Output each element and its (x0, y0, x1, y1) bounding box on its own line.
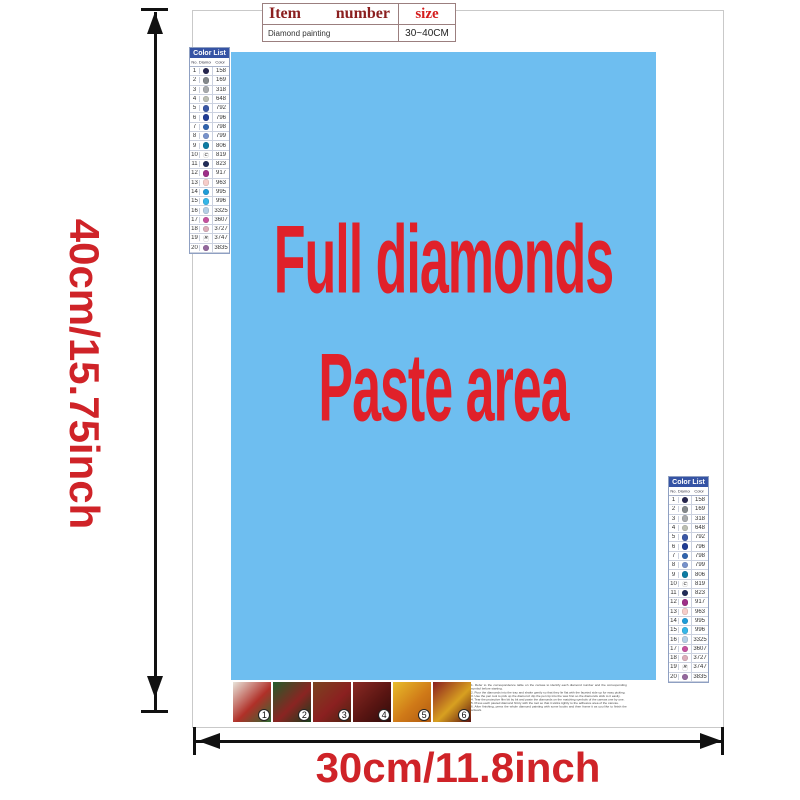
diamond-swatch-icon (682, 553, 689, 560)
color-list-row: 7 798 (669, 552, 708, 561)
diamond-swatch-icon (682, 646, 689, 653)
color-list-row: 12 917 (190, 169, 229, 178)
accessory-number-badge: 3 (338, 709, 350, 721)
accessory-number-badge: 1 (258, 709, 270, 721)
color-list-row: 18 3727 (190, 225, 229, 234)
color-list-row: 13 963 (669, 608, 708, 617)
color-list-row: 19 R 3747 (190, 234, 229, 243)
diamond-swatch-icon (203, 226, 210, 233)
diamond-swatch-icon (203, 189, 210, 196)
spec-value-item: Diamond painting (263, 25, 399, 41)
diamond-swatch-icon: C (203, 152, 210, 159)
color-list-row: 13 963 (190, 179, 229, 188)
paste-area: Full diamonds Paste area (231, 52, 656, 680)
diamond-swatch-icon (203, 170, 210, 177)
height-dimension-line (154, 12, 157, 710)
diamond-swatch-icon (682, 497, 689, 504)
color-list-row: 17 3607 (190, 216, 229, 225)
color-list-row: 1 158 (190, 67, 229, 76)
color-list-left-columns: No. Diamond Color (190, 58, 229, 67)
diamond-swatch-icon (682, 608, 689, 615)
diamond-swatch-icon (682, 674, 689, 681)
diamond-swatch-icon (682, 590, 689, 597)
diamond-swatch-icon (682, 627, 689, 634)
spec-header-item-number: Item number (263, 4, 399, 25)
spec-header-number: number (336, 5, 390, 23)
color-list-row: 1 158 (669, 496, 708, 505)
diamond-swatch-icon (203, 124, 210, 131)
accessory-number-badge: 2 (298, 709, 310, 721)
color-list-row: 16 3325 (190, 206, 229, 215)
diamond-swatch-icon (203, 114, 210, 121)
color-list-row: 20 3835 (190, 244, 229, 253)
color-list-row: 6 796 (190, 113, 229, 122)
color-list-row: 15 996 (190, 197, 229, 206)
color-list-row: 14 995 (190, 188, 229, 197)
color-list-row: 4 648 (190, 95, 229, 104)
width-dimension-line (196, 740, 723, 743)
diamond-swatch-icon (203, 77, 210, 84)
diamond-swatch-icon: C (682, 581, 689, 588)
height-dimension-top-cap (141, 8, 168, 11)
arrow-up-icon (147, 12, 163, 34)
color-list-right-rows: 1 158 2 169 3 (669, 496, 708, 682)
diamond-swatch-icon (203, 179, 210, 186)
diamond-swatch-icon (682, 636, 689, 643)
color-list-row: 12 917 (669, 598, 708, 607)
color-list-left-rows: 1 158 2 169 3 (190, 67, 229, 253)
height-dimension-label: 40cm/15.75inch (60, 194, 108, 554)
diamond-swatch-icon (682, 571, 689, 578)
instructions-block: 1. Refer to the correspondence table on … (471, 684, 627, 722)
color-list-left: Color List No. Diamond Color 1 158 2 (189, 47, 230, 254)
paste-area-title-line2: Paste area (231, 334, 656, 445)
diamond-swatch-icon (682, 506, 689, 513)
color-list-row: 2 169 (669, 505, 708, 514)
color-list-row: 8 799 (190, 132, 229, 141)
diamond-swatch-icon (203, 217, 210, 224)
diamond-swatch-icon (682, 599, 689, 606)
color-list-row: 2 169 (190, 76, 229, 85)
accessory-photo: 4 (353, 682, 391, 722)
diamond-swatch-icon (203, 133, 210, 140)
diamond-swatch-icon: R (682, 664, 689, 671)
color-list-row: 8 799 (669, 561, 708, 570)
color-list-right-title: Color List (669, 477, 708, 487)
diamond-swatch-icon (203, 198, 210, 205)
color-list-right-columns: No. Diamond Color (669, 487, 708, 496)
spec-header-size: size (399, 4, 455, 25)
diamond-swatch-icon (682, 618, 689, 625)
spec-value-size: 30~40CM (399, 25, 455, 41)
color-list-row: 11 823 (669, 589, 708, 598)
diamond-swatch-icon (203, 207, 210, 214)
spec-header-item: Item (269, 5, 301, 23)
diamond-swatch-icon (682, 562, 689, 569)
accessory-photo: 5 (393, 682, 431, 722)
width-dimension-label: 30cm/11.8inch (192, 744, 724, 792)
product-diagram: Full diamonds Paste area Item number siz… (0, 0, 800, 800)
diamond-swatch-icon (203, 86, 210, 93)
diamond-swatch-icon: R (203, 235, 210, 242)
color-list-right: Color List No. Diamond Color 1 158 2 (668, 476, 709, 683)
color-list-row: 6 796 (669, 542, 708, 551)
color-list-row: 20 3835 (669, 673, 708, 682)
diamond-swatch-icon (682, 543, 689, 550)
color-list-row: 5 792 (669, 533, 708, 542)
diamond-swatch-icon (682, 515, 689, 522)
arrow-down-icon (147, 676, 163, 698)
paste-area-title-line1: Full diamonds (231, 206, 656, 317)
color-list-row: 19 R 3747 (669, 663, 708, 672)
accessories-strip: 1 2 3 4 5 6 (233, 682, 471, 722)
color-list-row: 9 806 (190, 141, 229, 150)
accessory-photo: 6 (433, 682, 471, 722)
color-list-left-title: Color List (190, 48, 229, 58)
color-list-row: 10 C 819 (190, 151, 229, 160)
color-list-row: 17 3607 (669, 645, 708, 654)
diamond-swatch-icon (203, 105, 210, 112)
accessory-number-badge: 6 (458, 709, 470, 721)
diamond-swatch-icon (682, 534, 689, 541)
diamond-swatch-icon (682, 525, 689, 532)
color-list-row: 5 792 (190, 104, 229, 113)
diamond-swatch-icon (203, 96, 210, 103)
color-list-row: 7 798 (190, 123, 229, 132)
diamond-swatch-icon (203, 142, 210, 149)
color-list-row: 11 823 (190, 160, 229, 169)
instruction-line: 1. Refer to the correspondence table on … (471, 684, 627, 691)
color-list-row: 9 806 (669, 570, 708, 579)
color-list-row: 3 318 (190, 86, 229, 95)
diamond-swatch-icon (203, 161, 210, 168)
color-list-row: 3 318 (669, 515, 708, 524)
diamond-swatch-icon (203, 68, 210, 75)
diamond-swatch-icon (682, 655, 689, 662)
height-dimension-bottom-cap (141, 710, 168, 713)
diamond-swatch-icon (203, 245, 210, 252)
color-list-row: 18 3727 (669, 654, 708, 663)
accessory-number-badge: 5 (418, 709, 430, 721)
spec-table: Item number size Diamond painting 30~40C… (262, 3, 456, 42)
color-list-row: 16 3325 (669, 635, 708, 644)
accessory-number-badge: 4 (378, 709, 390, 721)
color-list-row: 10 C 819 (669, 580, 708, 589)
color-list-row: 14 995 (669, 617, 708, 626)
instruction-line: 6. After finishing, press the whole diam… (471, 705, 627, 712)
accessory-photo: 2 (273, 682, 311, 722)
accessory-photo: 1 (233, 682, 271, 722)
color-list-row: 4 648 (669, 524, 708, 533)
color-list-row: 15 996 (669, 626, 708, 635)
accessory-photo: 3 (313, 682, 351, 722)
